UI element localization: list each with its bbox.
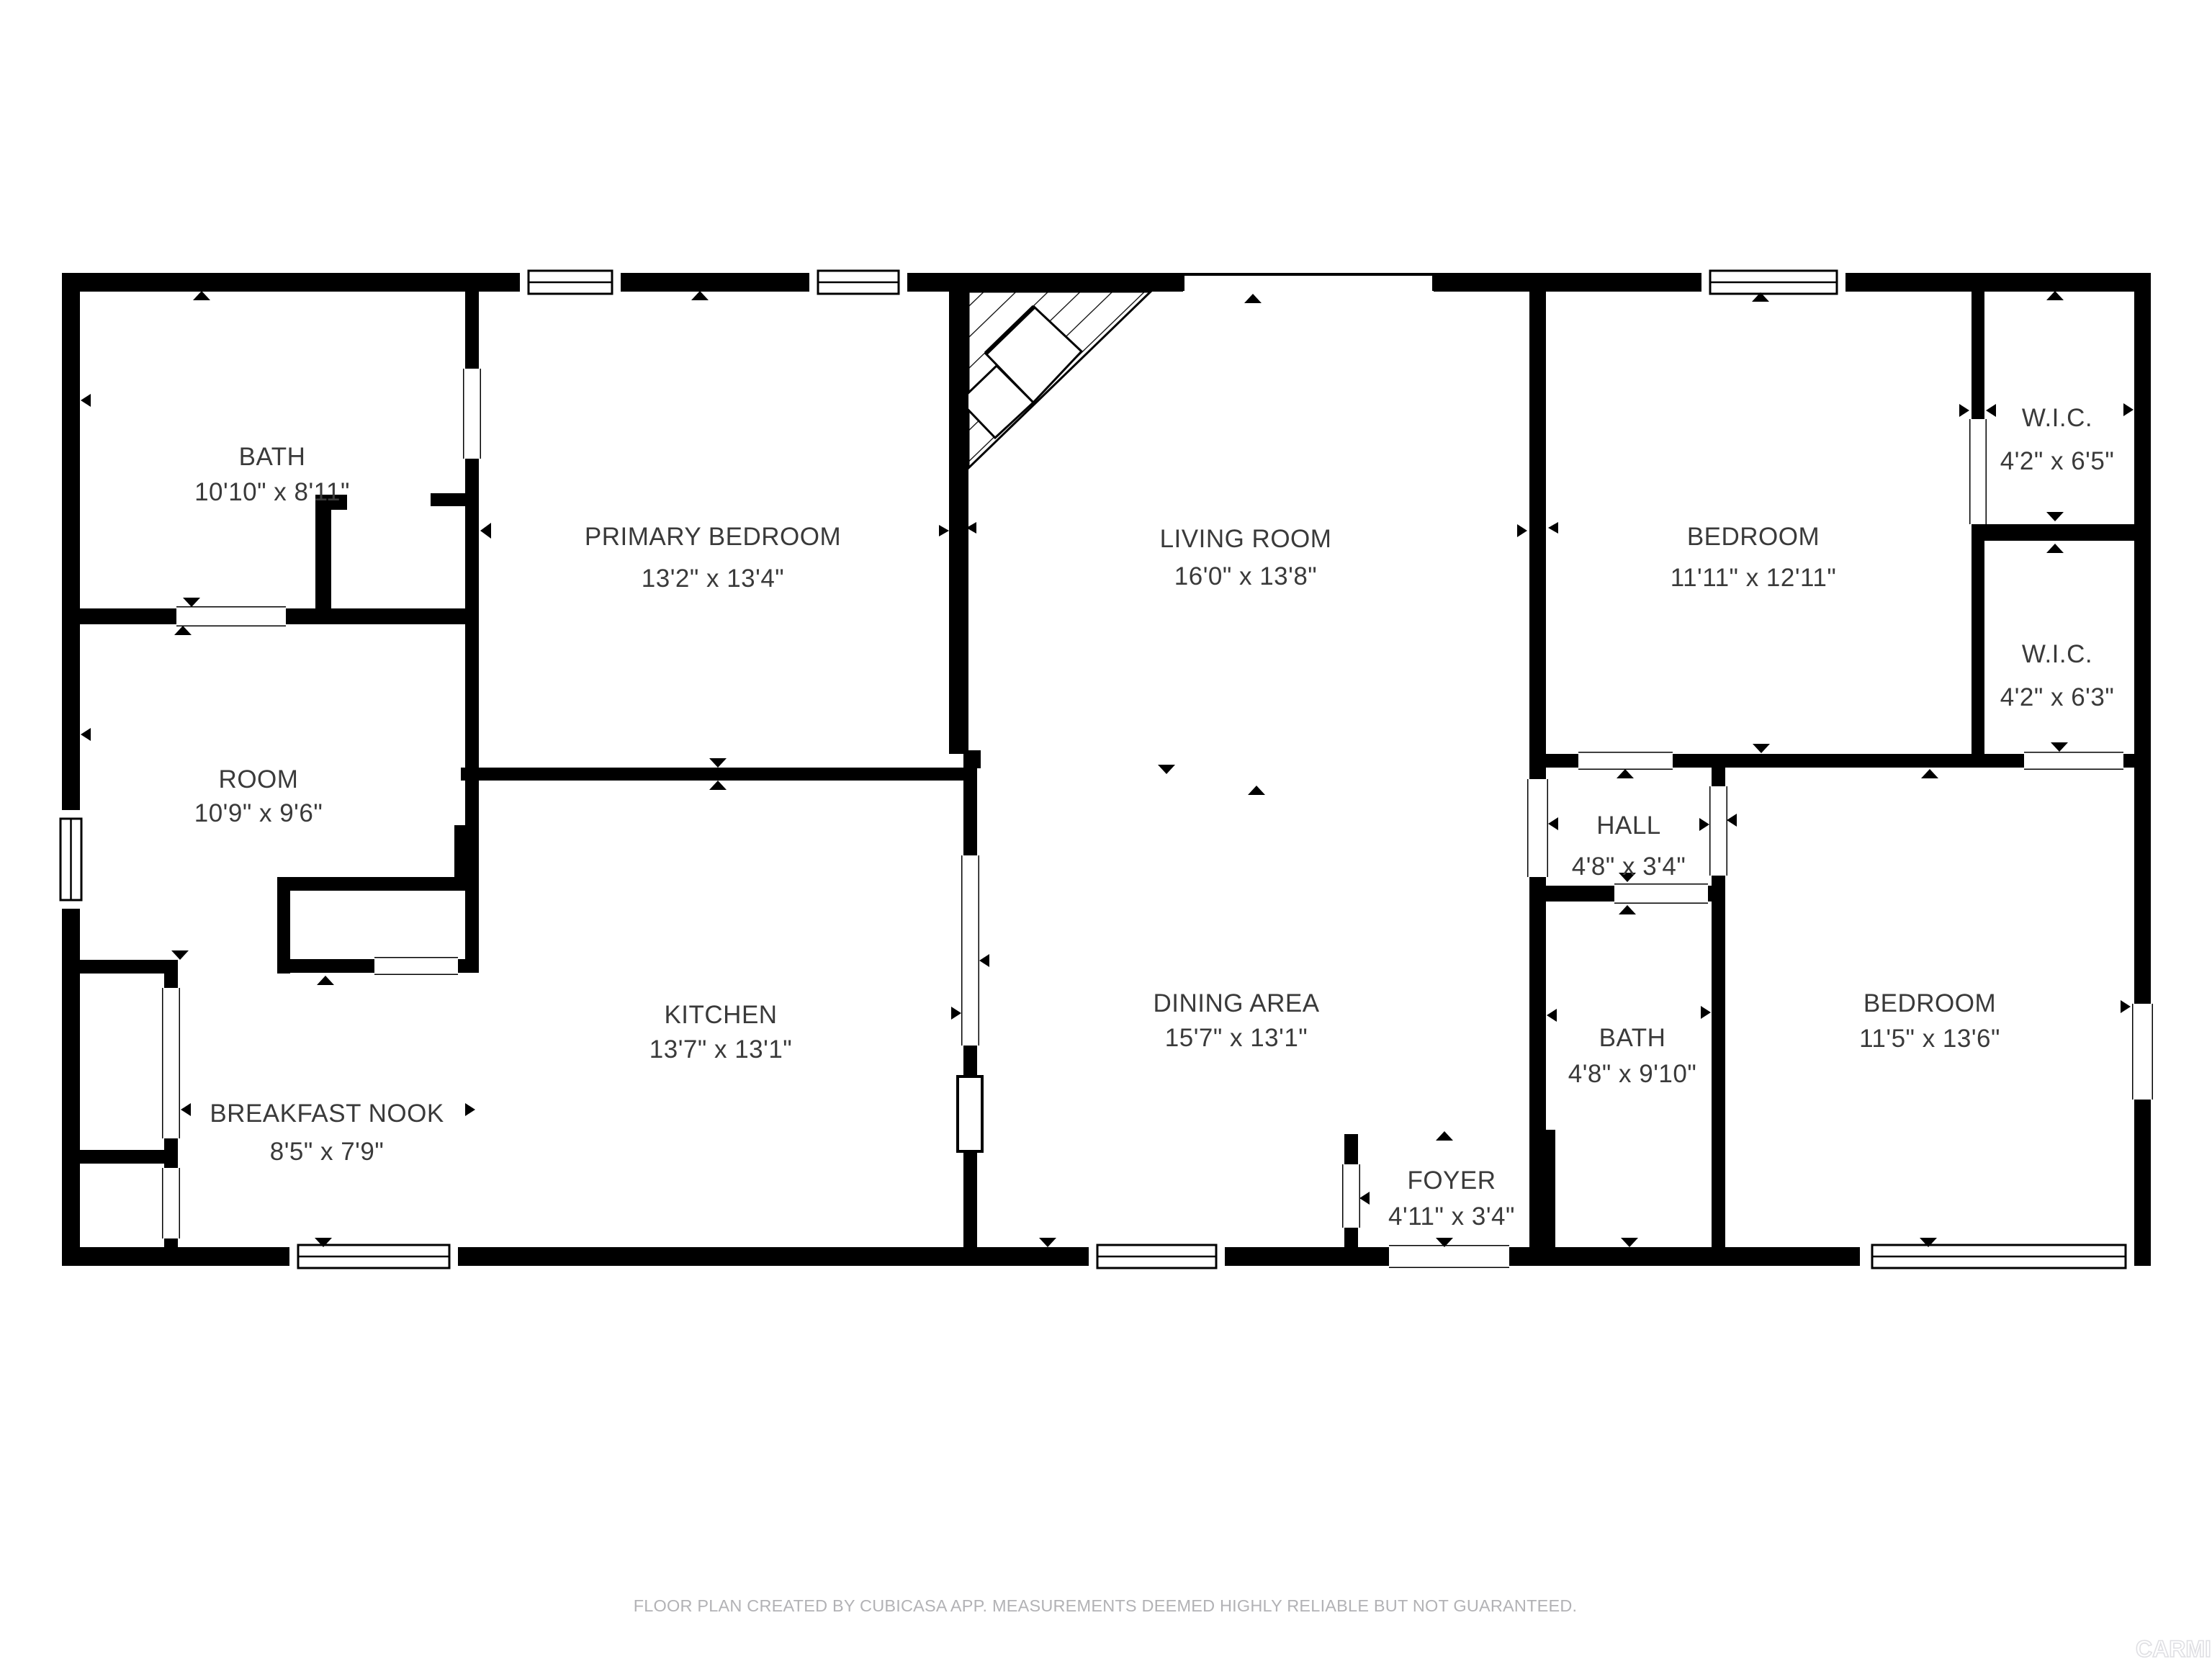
svg-text:13'7" x 13'1": 13'7" x 13'1" bbox=[649, 1035, 792, 1064]
svg-text:15'7" x 13'1": 15'7" x 13'1" bbox=[1165, 1024, 1308, 1052]
svg-text:4'2" x 6'5": 4'2" x 6'5" bbox=[2000, 447, 2115, 475]
svg-text:BEDROOM: BEDROOM bbox=[1687, 523, 1820, 551]
svg-text:BATH: BATH bbox=[1599, 1024, 1666, 1052]
svg-text:4'8" x 3'4": 4'8" x 3'4" bbox=[1572, 853, 1686, 881]
svg-text:FLOOR PLAN CREATED BY CUBICASA: FLOOR PLAN CREATED BY CUBICASA APP. MEAS… bbox=[634, 1596, 1578, 1615]
svg-text:16'0" x 13'8": 16'0" x 13'8" bbox=[1174, 562, 1317, 590]
svg-text:PRIMARY BEDROOM: PRIMARY BEDROOM bbox=[585, 523, 841, 551]
svg-text:HALL: HALL bbox=[1596, 811, 1661, 840]
svg-text:10'10" x 8'11": 10'10" x 8'11" bbox=[194, 478, 350, 506]
svg-text:BREAKFAST NOOK: BREAKFAST NOOK bbox=[210, 1100, 444, 1128]
svg-text:BATH: BATH bbox=[239, 443, 306, 471]
svg-text:13'2" x 13'4": 13'2" x 13'4" bbox=[642, 565, 784, 593]
svg-text:8'5" x 7'9": 8'5" x 7'9" bbox=[270, 1138, 385, 1166]
svg-text:4'11" x 3'4": 4'11" x 3'4" bbox=[1388, 1202, 1515, 1231]
svg-text:W.I.C.: W.I.C. bbox=[2022, 640, 2092, 668]
svg-text:4'2" x 6'3": 4'2" x 6'3" bbox=[2000, 683, 2115, 711]
svg-text:FOYER: FOYER bbox=[1407, 1166, 1496, 1195]
svg-text:ROOM: ROOM bbox=[219, 765, 299, 793]
svg-text:11'11" x 12'11": 11'11" x 12'11" bbox=[1671, 564, 1837, 592]
svg-text:4'8" x 9'10": 4'8" x 9'10" bbox=[1568, 1060, 1697, 1088]
svg-text:DINING AREA: DINING AREA bbox=[1153, 989, 1319, 1017]
svg-text:W.I.C.: W.I.C. bbox=[2022, 404, 2092, 432]
svg-text:10'9" x 9'6": 10'9" x 9'6" bbox=[194, 799, 323, 827]
svg-text:CARMILE, INC: CARMILE, INC bbox=[2136, 1636, 2212, 1659]
svg-text:BEDROOM: BEDROOM bbox=[1863, 989, 1996, 1017]
svg-text:11'5" x 13'6": 11'5" x 13'6" bbox=[1859, 1025, 2000, 1053]
svg-text:KITCHEN: KITCHEN bbox=[664, 1001, 777, 1029]
svg-text:LIVING ROOM: LIVING ROOM bbox=[1160, 525, 1332, 553]
